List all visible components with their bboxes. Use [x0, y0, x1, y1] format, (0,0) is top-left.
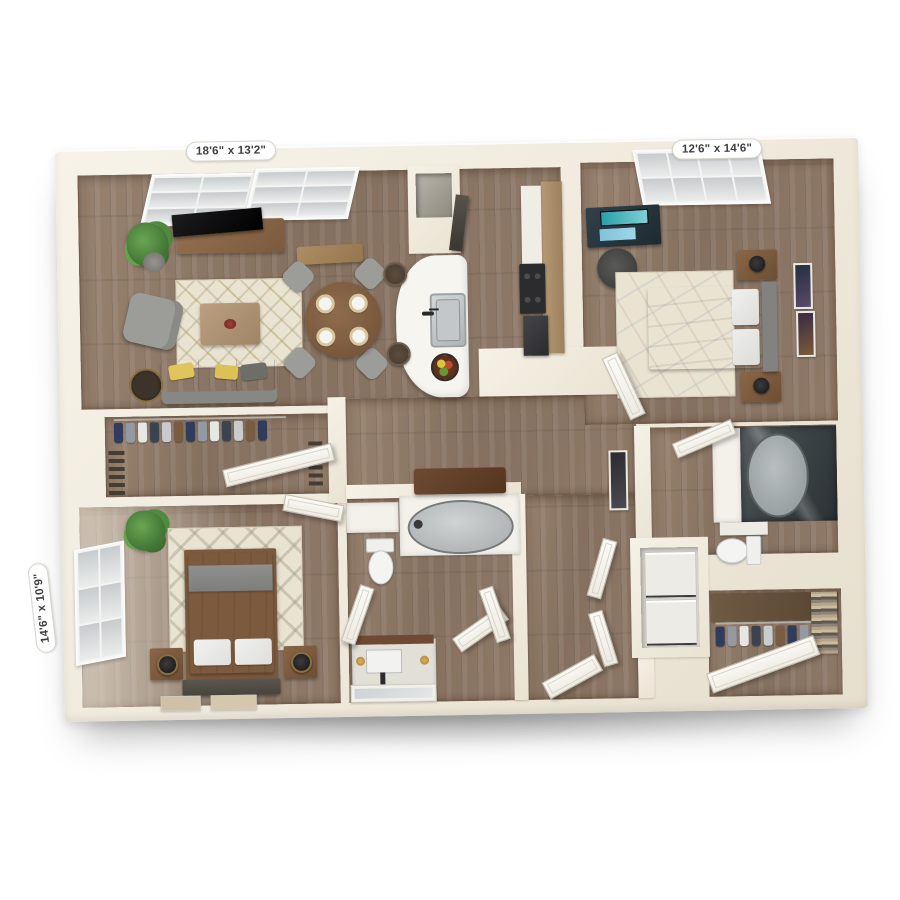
- floor-plan: [55, 136, 868, 722]
- sofa-pillow-gray: [240, 362, 268, 381]
- toilet-right-tank: [746, 536, 762, 565]
- wall-art-right-2: [796, 311, 816, 357]
- desk-laptop: [598, 226, 637, 242]
- bed-left-throw: [188, 564, 272, 591]
- bed-right-pillow-2: [732, 329, 760, 365]
- bedroom-left-window: [74, 541, 126, 667]
- floor-frame-1: [161, 696, 201, 712]
- vanity-center-backsplash: [354, 635, 434, 645]
- closet-left-shoes-1: [108, 449, 125, 495]
- refrigerator: [523, 315, 549, 355]
- desk-monitor: [600, 209, 649, 226]
- bathtub-deck-right: [712, 428, 742, 522]
- dining-console: [297, 244, 364, 265]
- dimension-label-living-room: 18'6" x 13'2": [186, 140, 276, 162]
- hall-dresser: [414, 467, 506, 495]
- closet-left-clothes: [114, 416, 286, 447]
- stove: [519, 264, 546, 314]
- bed-right-headboard: [761, 281, 778, 371]
- bath-center-niche: [346, 502, 399, 533]
- vanity-right-counter: [720, 522, 768, 536]
- floor-frame-2: [211, 695, 257, 711]
- bed-left-pillow-2: [235, 638, 272, 665]
- bed-left-pillow-1: [194, 639, 231, 666]
- vanity-center-knob-2: [420, 656, 429, 665]
- sofa-pillow-yellow-2: [214, 364, 238, 380]
- dimension-label-bedroom-left: 14'6" x 10'9": [27, 562, 57, 654]
- island-sink: [430, 293, 467, 348]
- vanity-center-sink: [366, 649, 402, 674]
- bed-right-pillow-1: [732, 289, 760, 325]
- pantry-interior: [416, 173, 453, 218]
- vanity-center-mirror: [350, 683, 436, 702]
- floor-plan-image: 18'6" x 13'2" 12'6" x 14'6" 14'6" x 10'9…: [0, 0, 900, 900]
- toilet-right-bowl: [716, 538, 748, 564]
- washer: [644, 551, 697, 599]
- wall-art-right-1: [793, 263, 813, 309]
- wall-corridor-right-bottom: [638, 656, 655, 698]
- dimension-label-bedroom-right: 12'6" x 14'6": [672, 138, 762, 160]
- vanity-center-knob-1: [356, 657, 365, 666]
- hall-mirror: [608, 450, 628, 510]
- vanity-center-faucet: [380, 672, 385, 684]
- bedroom-left-plant: [125, 510, 166, 551]
- kitchen-counter-white: [521, 186, 542, 264]
- dryer: [645, 599, 698, 647]
- bed-left-bench: [182, 678, 280, 696]
- island-faucet: [422, 311, 434, 315]
